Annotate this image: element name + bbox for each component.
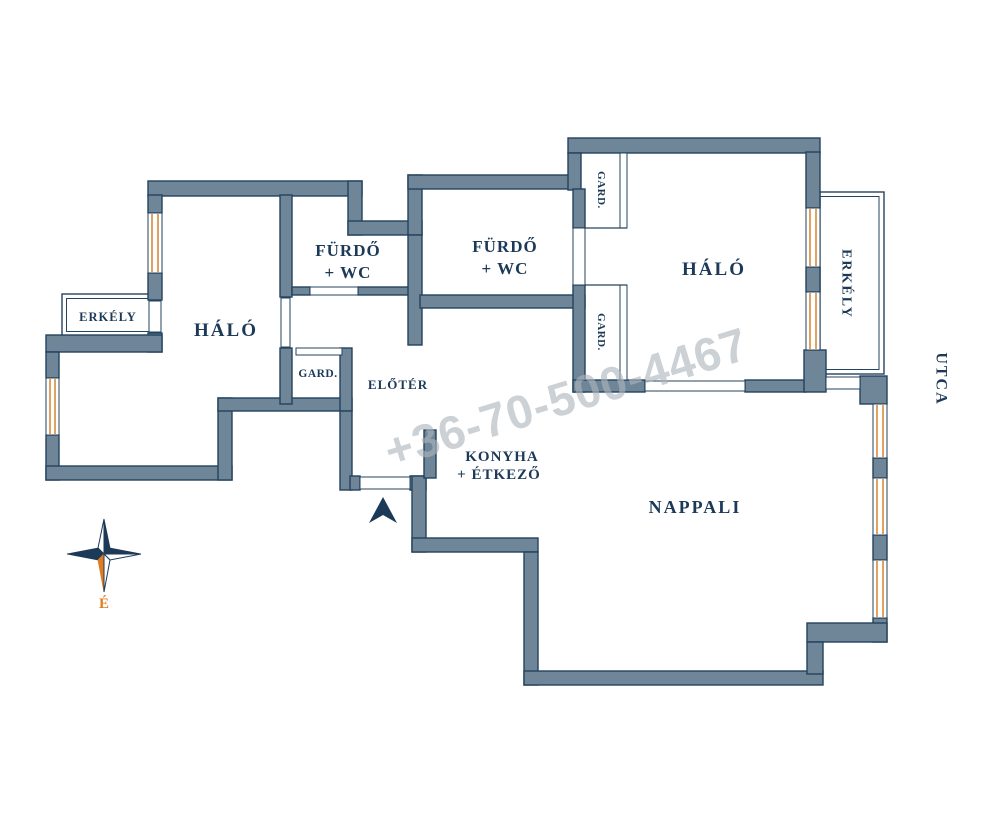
room-label-closet-1: GARD.	[595, 171, 607, 209]
wall	[806, 152, 820, 208]
room-label-balcony-right: ERKÉLY	[839, 249, 856, 319]
wall	[280, 348, 292, 404]
compass-point	[104, 548, 141, 554]
wall	[420, 295, 585, 308]
wall	[573, 189, 585, 228]
window	[873, 560, 887, 618]
wall	[148, 273, 162, 300]
window	[806, 292, 820, 350]
wall	[807, 623, 887, 642]
room-label-bedroom-right: HÁLÓ	[682, 258, 746, 280]
window	[873, 404, 887, 458]
wall	[408, 175, 580, 189]
closet-1-door	[620, 153, 627, 228]
room-label-bathroom-2-line2: + WC	[482, 259, 529, 278]
room-label-hall: ELŐTÉR	[368, 377, 428, 392]
wall	[524, 671, 823, 685]
wall	[745, 380, 806, 392]
wall	[524, 552, 538, 685]
wall	[280, 195, 292, 297]
bathroom-2-door	[573, 228, 585, 285]
wall	[806, 267, 820, 292]
wall	[873, 535, 887, 560]
window	[46, 378, 59, 435]
wall	[568, 138, 820, 153]
entrance-door	[360, 477, 410, 489]
wall	[860, 376, 887, 404]
wall	[46, 466, 232, 480]
entrance-arrow	[369, 497, 397, 523]
wardrobe-hall-door	[296, 348, 342, 355]
room-label-closet-2: GARD.	[595, 313, 607, 351]
wall	[340, 348, 352, 411]
compass-rose: É	[67, 519, 141, 612]
compass-point	[98, 554, 104, 592]
wall	[148, 181, 362, 196]
phone-watermark: +36-70-500-4467	[378, 317, 754, 478]
wall	[807, 642, 823, 674]
window	[806, 208, 820, 267]
floorplan-drawing: HÁLÓ ERKÉLY FÜRDŐ + WC FÜRDŐ + WC GARD. …	[0, 0, 1000, 820]
wall	[350, 476, 360, 490]
street-label: UTCA	[933, 352, 950, 405]
floorplan-page: HÁLÓ ERKÉLY FÜRDŐ + WC FÜRDŐ + WC GARD. …	[0, 0, 1000, 820]
compass-north-label: É	[99, 595, 109, 612]
wall	[412, 538, 538, 552]
wall	[873, 458, 887, 478]
wall	[148, 195, 162, 213]
wall	[292, 287, 310, 295]
window	[873, 478, 887, 535]
compass-point	[67, 548, 104, 554]
wall	[804, 350, 826, 392]
bedroom-left-door	[281, 298, 290, 347]
room-label-balcony-left: ERKÉLY	[79, 310, 137, 324]
room-label-bathroom-2-line1: FÜRDŐ	[472, 237, 537, 256]
bathroom-1-door	[310, 287, 358, 295]
wall	[568, 153, 581, 190]
balcony-right-door	[826, 377, 860, 389]
wall	[46, 352, 59, 378]
wall	[46, 335, 162, 352]
room-label-bedroom-left: HÁLÓ	[194, 319, 258, 341]
room-label-living-room: NAPPALI	[649, 497, 742, 517]
balcony-left-door	[149, 301, 161, 332]
window	[148, 213, 162, 273]
wall	[408, 235, 422, 345]
room-label-bathroom-1-line2: + WC	[325, 263, 372, 282]
room-label-wardrobe-hall: GARD.	[298, 368, 337, 380]
room-label-bathroom-1-line1: FÜRDŐ	[315, 241, 380, 260]
room-label-kitchen-line2: + ÉTKEZŐ	[457, 466, 541, 483]
compass-point	[104, 554, 110, 592]
